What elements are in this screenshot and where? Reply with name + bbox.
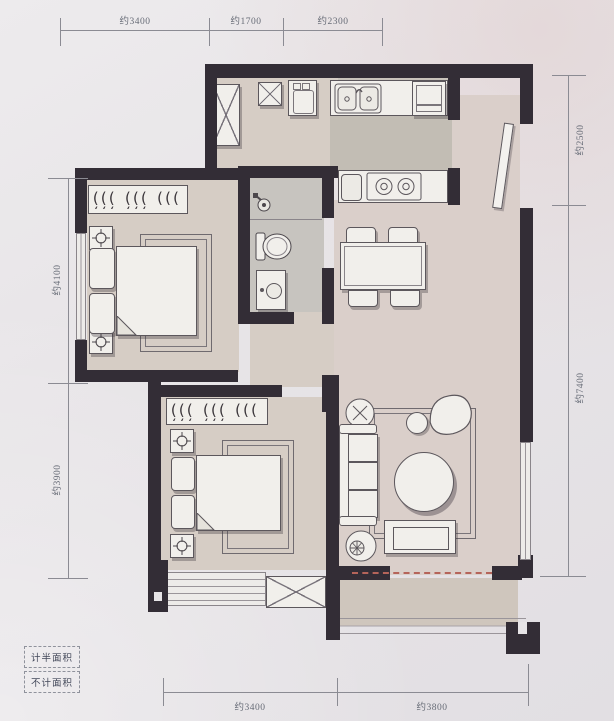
tv-screen — [393, 527, 449, 550]
wall-notch — [518, 622, 527, 634]
wall-notch — [154, 592, 162, 601]
dim-label-right-2: 约7400 — [572, 372, 586, 403]
fridge-icon — [412, 81, 446, 116]
wall — [448, 168, 460, 205]
dim-tick — [60, 18, 61, 46]
floor-kitchen-passage — [330, 116, 452, 172]
bed-fold-corner — [117, 316, 137, 336]
shower-head-icon — [252, 192, 272, 214]
plant-stand-icon — [343, 528, 379, 564]
dim-label-left-2: 约3900 — [49, 464, 63, 495]
dim-tick — [552, 205, 586, 206]
dining-chair-icon — [390, 290, 420, 307]
dim-label-right-1: 约2500 — [572, 124, 586, 155]
wall — [326, 375, 339, 573]
washer-control — [293, 83, 301, 90]
wall — [492, 566, 522, 580]
double-bed-icon — [171, 455, 281, 533]
dim-label-top-2: 约1700 — [230, 13, 261, 27]
dim-label-bottom-1: 约3400 — [234, 699, 265, 713]
kitchen-sink-icon — [334, 83, 382, 114]
vanity-sink-icon — [256, 270, 286, 310]
sofa-cushion — [348, 462, 378, 490]
wall — [148, 382, 161, 565]
armchair-icon — [424, 392, 474, 444]
dining-table-icon — [340, 242, 426, 290]
dim-right-line — [568, 75, 569, 576]
dim-label-bottom-2: 约3800 — [416, 699, 447, 713]
wall — [238, 168, 250, 322]
dim-label-top-1: 约3400 — [119, 13, 150, 27]
hanger-symbols: ((( ((( ((( ((( ((( — [169, 403, 266, 421]
dim-top-line — [60, 30, 382, 31]
sofa-arm — [339, 424, 377, 434]
bed-pillow — [171, 495, 195, 529]
dim-tick — [48, 178, 88, 179]
wall — [238, 312, 294, 324]
wall — [520, 208, 533, 442]
dim-tick — [540, 576, 586, 577]
table-inner-border — [344, 246, 422, 286]
wall — [75, 370, 238, 382]
wall — [148, 560, 168, 612]
bay-window — [166, 572, 266, 606]
stove-icon — [366, 172, 422, 201]
dim-bottom-line — [163, 692, 528, 693]
fridge-inner — [416, 85, 442, 105]
sofa-icon — [339, 424, 385, 522]
hanger-symbols: ((( ((( ((( ((( ((( — [91, 191, 186, 209]
dining-chair-icon — [346, 227, 376, 243]
dim-tick — [163, 678, 164, 706]
wall — [322, 166, 334, 218]
sofa-cushion — [348, 490, 378, 518]
wall — [326, 566, 340, 640]
dim-tick — [209, 18, 210, 46]
balcony-threshold-dashed-line — [352, 572, 492, 574]
floor-plan-page: { "dimensions": { "top": [ {"label":"约34… — [0, 0, 614, 721]
bed-pillow — [171, 457, 195, 491]
wall — [75, 168, 247, 180]
window — [520, 442, 531, 560]
dim-tick — [283, 18, 284, 46]
window — [76, 233, 86, 340]
balcony-railing — [334, 618, 526, 634]
sofa-arm — [339, 516, 377, 526]
wall — [205, 64, 533, 78]
dim-tick — [382, 18, 383, 46]
legend-not-counted-area: 不计面积 — [24, 671, 80, 693]
dim-tick — [48, 383, 88, 384]
dim-tick — [337, 678, 338, 706]
small-cabinet-x-icon — [258, 82, 282, 106]
tv-cabinet-icon — [384, 520, 456, 554]
washing-machine-icon — [288, 80, 317, 116]
fridge-inner — [416, 105, 442, 112]
nightstand-icon — [170, 429, 194, 453]
dim-tick — [552, 75, 586, 76]
nightstand-icon — [170, 534, 194, 558]
coffee-table-icon — [394, 452, 454, 512]
storage-cabinet-x-icon — [266, 576, 326, 608]
double-bed-icon — [89, 246, 197, 338]
bed-pillow — [89, 248, 115, 289]
bed-pillow — [89, 293, 115, 334]
dining-chair-icon — [388, 227, 418, 243]
wall — [448, 78, 460, 120]
vanity-basin — [266, 283, 282, 299]
vanity-faucet — [260, 288, 264, 292]
toilet-icon — [255, 228, 293, 265]
dim-left-line — [68, 178, 69, 578]
wall — [520, 78, 533, 124]
dim-tick — [48, 578, 88, 579]
bed-fold-corner — [197, 513, 215, 531]
washer-drum — [293, 90, 314, 114]
dim-label-left-1: 约4100 — [49, 264, 63, 295]
legend-counted-half-area: 计半面积 — [24, 646, 80, 668]
small-sink-icon — [341, 174, 362, 201]
washer-control — [302, 83, 310, 90]
dining-chair-icon — [348, 290, 378, 307]
wall — [205, 64, 217, 168]
sofa-cushion — [348, 434, 378, 462]
wall — [322, 268, 334, 324]
shower-partition-line — [250, 219, 322, 220]
dim-label-top-3: 约2300 — [317, 13, 348, 27]
dim-tick — [528, 664, 529, 706]
wall — [148, 385, 282, 397]
